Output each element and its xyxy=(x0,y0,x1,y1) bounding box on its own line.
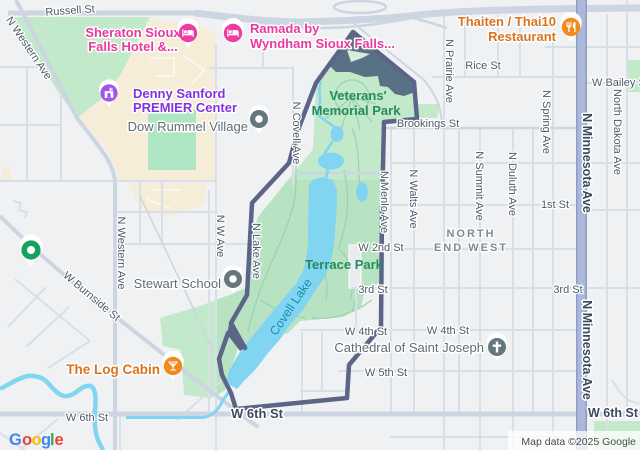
svg-text:N Prairie Ave: N Prairie Ave xyxy=(443,39,455,103)
svg-text:Dow Rummel Village: Dow Rummel Village xyxy=(128,119,248,134)
svg-text:1st St: 1st St xyxy=(541,199,569,211)
svg-text:Brookings St: Brookings St xyxy=(397,118,459,130)
svg-text:3rd St: 3rd St xyxy=(553,284,582,296)
svg-text:N Western Ave: N Western Ave xyxy=(115,217,127,290)
svg-text:Ramada by: Ramada by xyxy=(250,21,320,36)
svg-text:Restaurant: Restaurant xyxy=(488,29,557,44)
svg-text:N Walts Ave: N Walts Ave xyxy=(407,169,419,228)
svg-text:N Duluth Ave: N Duluth Ave xyxy=(506,152,518,216)
svg-text:W 4th St: W 4th St xyxy=(427,325,469,337)
svg-text:N Summit Ave: N Summit Ave xyxy=(473,151,485,221)
svg-text:The Log Cabin: The Log Cabin xyxy=(66,362,160,377)
svg-text:N Minnesota Ave: N Minnesota Ave xyxy=(580,113,594,213)
svg-text:Map data ©2025 Google: Map data ©2025 Google xyxy=(521,436,636,448)
svg-text:N Minnesota Ave: N Minnesota Ave xyxy=(580,300,594,400)
svg-text:Terrace Park: Terrace Park xyxy=(305,257,384,272)
svg-text:Denny Sanford: Denny Sanford xyxy=(133,86,226,101)
svg-text:W 6th St: W 6th St xyxy=(231,406,284,421)
svg-text:N Menlo Ave: N Menlo Ave xyxy=(378,171,390,233)
svg-text:W Bailey St: W Bailey St xyxy=(592,77,640,89)
svg-text:Cathedral of Saint Joseph: Cathedral of Saint Joseph xyxy=(334,340,484,355)
svg-text:Veterans': Veterans' xyxy=(329,88,386,103)
svg-text:N W Ave: N W Ave xyxy=(214,215,226,258)
svg-text:Rice St: Rice St xyxy=(465,60,500,72)
svg-text:Stewart School: Stewart School xyxy=(134,276,222,291)
svg-text:N Spring Ave: N Spring Ave xyxy=(540,90,552,154)
svg-text:North Dakota Ave: North Dakota Ave xyxy=(611,89,623,175)
svg-text:N Covell Ave: N Covell Ave xyxy=(290,102,302,165)
svg-text:N Lake Ave: N Lake Ave xyxy=(250,223,262,279)
svg-text:W 6th St: W 6th St xyxy=(588,406,639,420)
svg-text:W 6th St: W 6th St xyxy=(66,412,108,424)
svg-text:PREMIER Center: PREMIER Center xyxy=(133,100,237,115)
svg-text:e: e xyxy=(55,431,64,449)
svg-text:3rd St: 3rd St xyxy=(358,284,387,296)
svg-text:W 4th St: W 4th St xyxy=(345,326,387,338)
svg-text:Wyndham Sioux Falls...: Wyndham Sioux Falls... xyxy=(250,36,395,51)
svg-text:Sheraton Sioux: Sheraton Sioux xyxy=(85,25,181,40)
svg-text:G: G xyxy=(9,431,22,449)
svg-text:NORTH: NORTH xyxy=(446,228,495,240)
svg-text:W 5th St: W 5th St xyxy=(365,367,407,379)
svg-text:Thaiten / Thai10: Thaiten / Thai10 xyxy=(458,14,556,29)
svg-text:END WEST: END WEST xyxy=(434,242,508,254)
svg-text:Falls Hotel &...: Falls Hotel &... xyxy=(88,39,178,54)
svg-text:W 2nd St: W 2nd St xyxy=(358,242,403,254)
svg-text:Memorial Park: Memorial Park xyxy=(312,103,402,118)
